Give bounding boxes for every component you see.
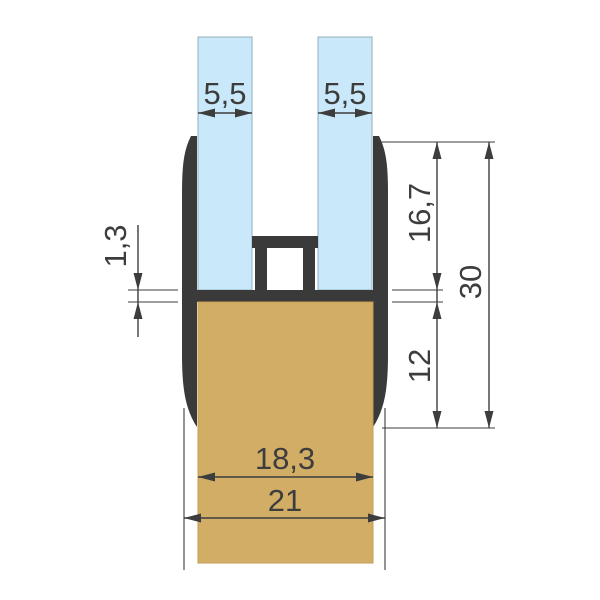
arrow-up-icon — [433, 302, 442, 319]
dim-label-outer-width: 21 — [268, 483, 302, 518]
base-block — [198, 302, 373, 563]
profile-cross-section-svg: 5,5 5,5 1,3 16,7 12 — [0, 0, 600, 600]
profile-right-wall — [373, 136, 388, 427]
dim-label-height: 30 — [453, 265, 488, 299]
dim-label-lip: 1,3 — [98, 224, 133, 267]
arrow-down-icon — [134, 273, 143, 290]
technical-drawing: 5,5 5,5 1,3 16,7 12 — [0, 0, 600, 600]
dim-label-base-depth: 12 — [402, 349, 437, 383]
profile-bottom-bar — [182, 290, 388, 302]
dim-label-glass-right: 5,5 — [323, 76, 366, 111]
glass-pane-right — [318, 37, 372, 290]
center-spacer — [252, 236, 318, 290]
arrow-up-icon — [433, 142, 442, 159]
dim-lip-thickness: 1,3 — [98, 224, 143, 337]
dim-label-glass-left: 5,5 — [203, 76, 246, 111]
dim-channel-and-base-depth: 16,7 12 — [402, 142, 442, 428]
arrow-down-icon — [433, 273, 442, 290]
spacer-top-bar — [252, 236, 318, 248]
arrow-up-icon — [485, 142, 494, 159]
spacer-right-leg — [303, 248, 315, 290]
glass-panes — [198, 37, 372, 290]
arrow-down-icon — [485, 411, 494, 428]
arrow-down-icon — [433, 411, 442, 428]
arrow-left-icon — [184, 514, 201, 523]
dim-profile-height: 30 — [453, 142, 494, 428]
dim-label-inner-width: 18,3 — [255, 441, 315, 476]
profile-left-wall — [182, 136, 197, 427]
glass-pane-left — [198, 37, 252, 290]
dim-label-channel-depth: 16,7 — [402, 183, 437, 243]
arrow-up-icon — [134, 302, 143, 319]
spacer-left-leg — [255, 248, 267, 290]
arrow-right-icon — [368, 514, 385, 523]
